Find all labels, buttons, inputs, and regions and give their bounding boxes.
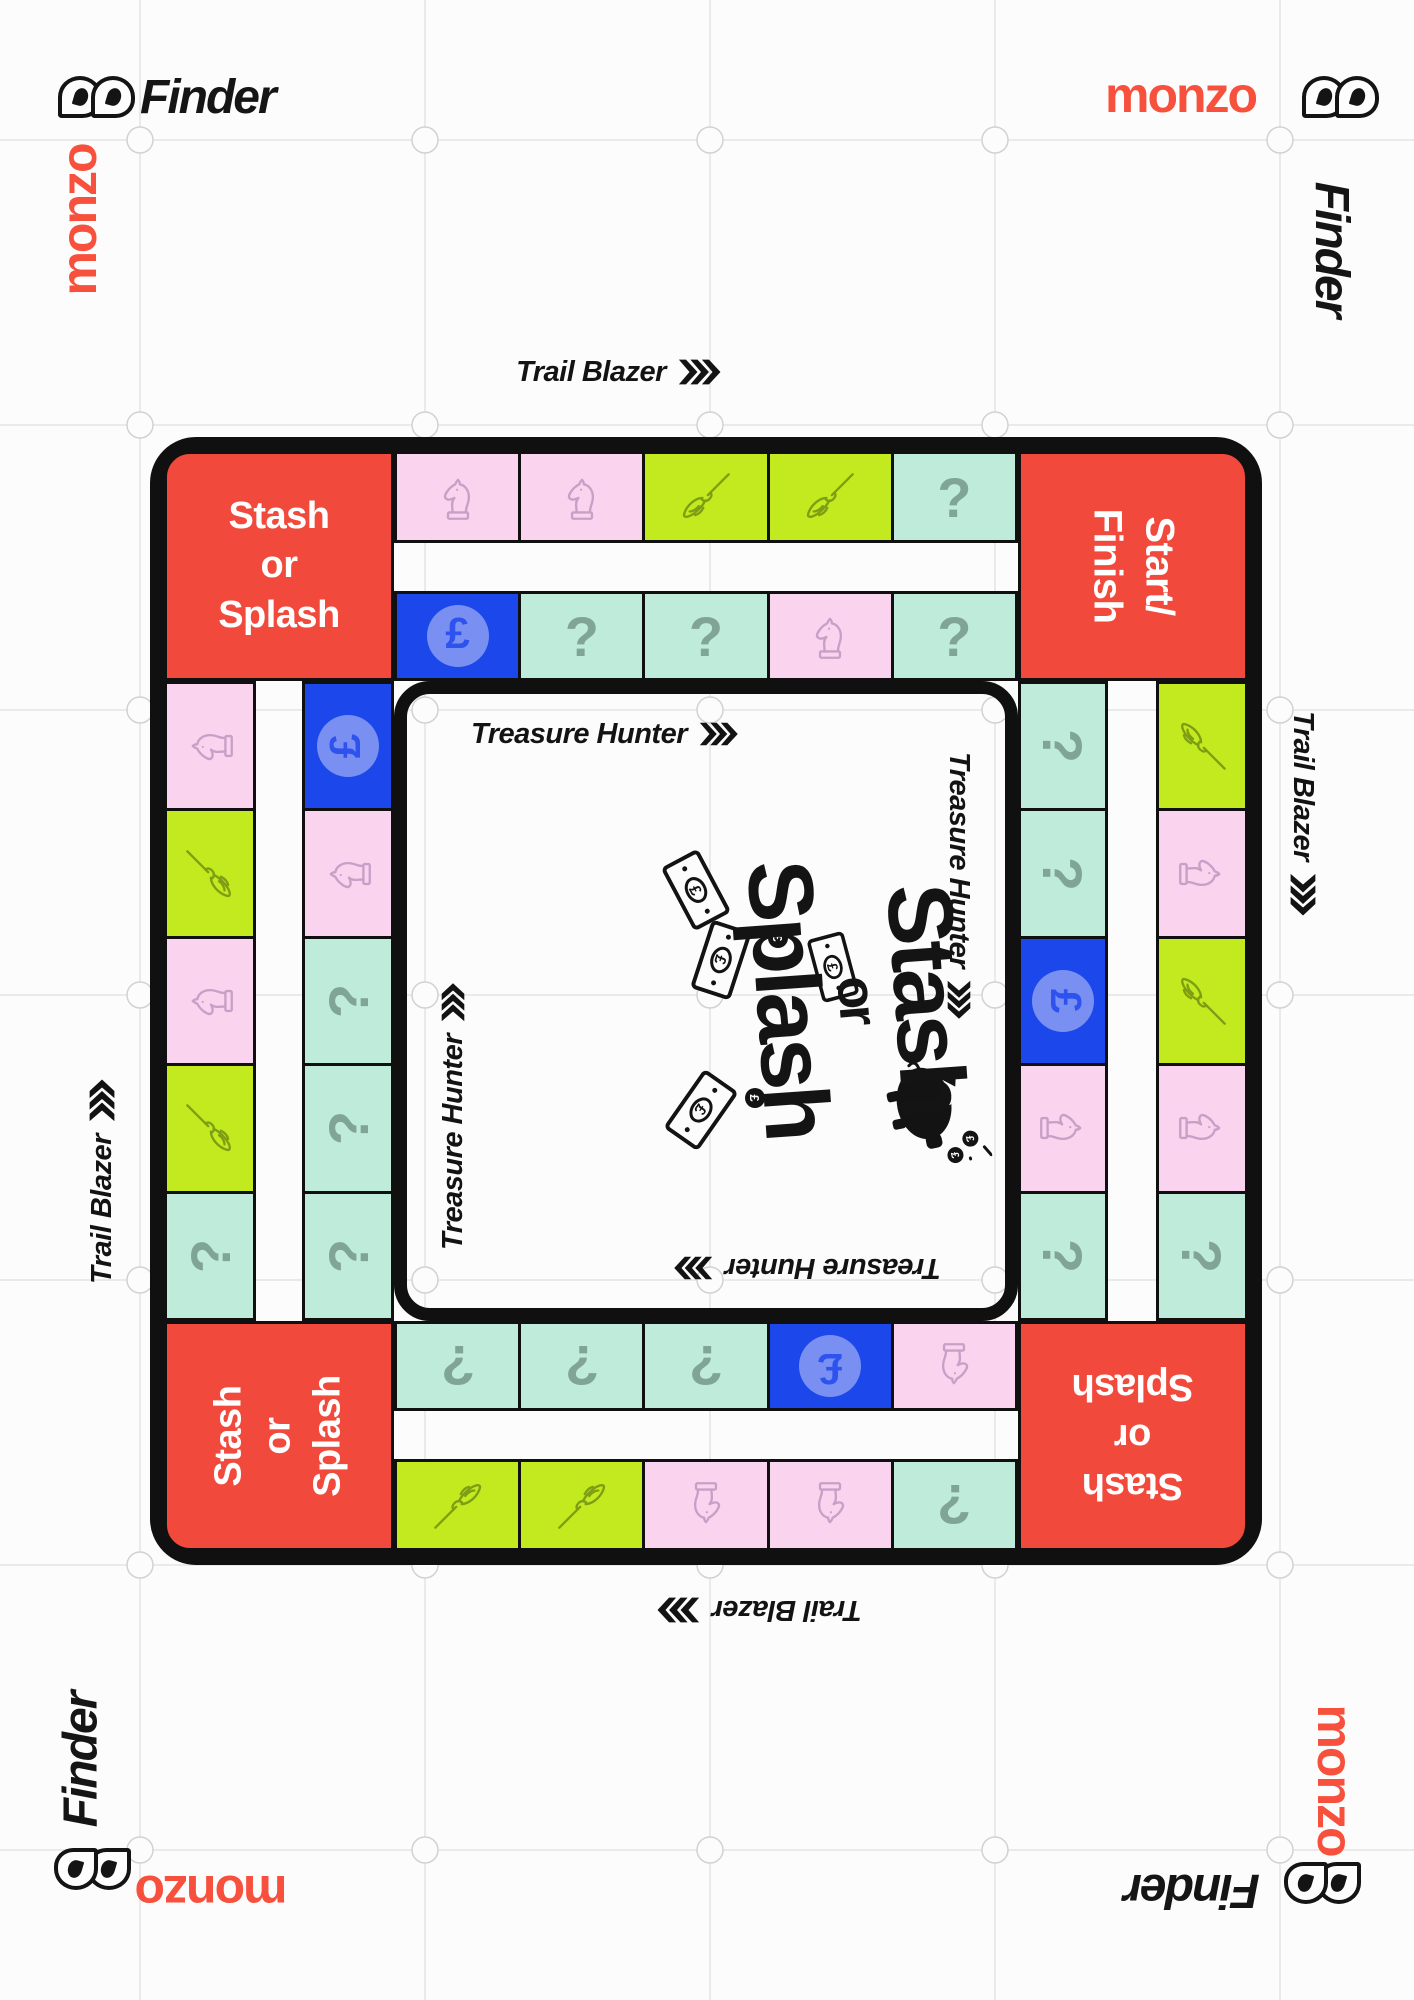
question-mark-icon: ? (937, 604, 971, 669)
question-mark-icon: ? (565, 1334, 599, 1399)
question-mark-icon: ? (1170, 1239, 1235, 1273)
print-sheet: Finder monzo monzo Finder Finder monzo F… (0, 0, 1414, 2000)
question-mark-icon: ? (565, 604, 599, 669)
center-logo-line: Splash (731, 831, 846, 1167)
finder-eyes-icon (58, 76, 135, 118)
banknote-icon: £ (663, 1068, 739, 1151)
track-left-inner: £ ??? (302, 681, 394, 1321)
board-cell-broom (645, 454, 769, 540)
corner-line: or (1072, 1411, 1194, 1460)
question-mark-icon: ? (1031, 729, 1096, 763)
board-cell-knight (645, 1462, 769, 1548)
pound-coin-icon: £ (799, 1335, 861, 1397)
question-mark-icon: ? (178, 1239, 243, 1273)
triple-chevron-icon (946, 980, 972, 1022)
monzo-logo: monzo (56, 130, 102, 310)
knight-icon (801, 607, 859, 665)
finder-eyes-icon (54, 1848, 131, 1890)
pound-coin-icon: £ (1032, 970, 1094, 1032)
board-cell-knight (167, 939, 253, 1066)
knight-icon (801, 1476, 859, 1534)
board-cell-broom (1159, 684, 1245, 811)
corner-stash-or-splash-bottom-right: Stash or Splash (1018, 1321, 1248, 1551)
treasure-hunter-text: Treasure Hunter (437, 1034, 470, 1250)
board-cell-question: ? (1021, 811, 1105, 938)
treasure-hunter-text: Treasure Hunter (725, 1252, 941, 1285)
board-cell-knight (894, 1324, 1015, 1408)
track-top-outer: ? (394, 451, 1018, 543)
corner-line: Finish (1081, 509, 1133, 624)
board-cell-question: ? (521, 594, 645, 678)
broom-icon (553, 1476, 611, 1534)
board-cell-knight (770, 1462, 894, 1548)
board-cell-question: ? (521, 1324, 645, 1408)
board-cell-question: ? (645, 1324, 769, 1408)
trail-blazer-text: Trail Blazer (712, 1594, 862, 1627)
corner-line: Splash (218, 591, 340, 640)
finder-logo: Finder (140, 70, 275, 125)
finder-eye-icon (91, 76, 135, 118)
trail-blazer-text: Trail Blazer (1287, 711, 1320, 861)
board-cell-knight (770, 594, 894, 678)
treasure-hunter-label-left: Treasure Hunter (433, 950, 473, 1280)
question-mark-icon: ? (316, 1111, 381, 1145)
trail-blazer-label-top: Trail Blazer (450, 352, 790, 392)
board-cell-question: ? (894, 1462, 1015, 1548)
triple-chevron-icon (671, 1255, 713, 1281)
question-mark-icon: ? (316, 1239, 381, 1273)
board-cell-knight (521, 454, 645, 540)
question-mark-icon: ? (937, 465, 971, 530)
broom-icon (801, 468, 859, 526)
question-mark-icon: ? (440, 1334, 474, 1399)
board-cell-broom (521, 1462, 645, 1548)
broom-icon (677, 468, 735, 526)
corner-line: Stash (1072, 1461, 1194, 1510)
knight-icon (925, 1337, 983, 1395)
triple-chevron-icon (654, 1596, 700, 1624)
board-cell-pound: £ (397, 594, 521, 678)
corner-line: Stash (218, 492, 340, 541)
track-left-outer: ? (164, 681, 256, 1321)
board-cell-question: ? (1021, 1194, 1105, 1318)
board-cell-pound: £ (1021, 939, 1105, 1066)
corner-start-finish: Start/ Finish (1018, 451, 1248, 681)
board-cell-question: ? (305, 1066, 391, 1193)
corner-stash-or-splash-bottom-left: Stash or Splash (164, 1321, 394, 1551)
treasure-hunter-text: Treasure Hunter (943, 752, 976, 968)
knight-icon (677, 1476, 735, 1534)
finder-eye-icon (54, 1848, 98, 1890)
broom-icon (181, 1099, 239, 1157)
center-square: Treasure Hunter Treasure Hunter Treasure… (394, 681, 1018, 1321)
broom-icon (1173, 717, 1231, 775)
monzo-logo: monzo (1105, 66, 1256, 124)
track-top-inner: £?? ? (394, 591, 1018, 681)
treasure-hunter-label-top: Treasure Hunter (441, 714, 771, 754)
board-cell-knight (1159, 811, 1245, 938)
trail-blazer-label-bottom: Trail Blazer (588, 1590, 928, 1630)
board-cell-question: ? (305, 939, 391, 1066)
corner-line: Start/ (1133, 509, 1185, 624)
board-cell-question: ? (1159, 1194, 1245, 1318)
corner-line: Stash (205, 1375, 254, 1497)
finder-logo: Finder (1100, 1866, 1285, 1916)
board-cell-knight (305, 811, 391, 938)
knight-icon (319, 845, 377, 903)
question-mark-icon: ? (689, 604, 723, 669)
triple-chevron-icon (440, 980, 466, 1022)
track-bottom-inner: ???£ (394, 1321, 1018, 1411)
knight-icon (1173, 1099, 1231, 1157)
knight-icon (1173, 845, 1231, 903)
triple-chevron-icon (1289, 873, 1317, 919)
track-bottom-outer: ? (394, 1459, 1018, 1551)
board-cell-broom (167, 811, 253, 938)
board-cell-question: ? (1021, 684, 1105, 811)
monzo-logo: monzo (1312, 1690, 1358, 1870)
banknote-icon: £ (661, 848, 732, 931)
triple-chevron-icon (699, 721, 741, 747)
finder-logo: Finder (57, 1668, 105, 1853)
board-cell-question: ? (894, 454, 1015, 540)
knight-icon (429, 468, 487, 526)
pound-coin-icon: £ (427, 605, 489, 667)
board-cell-question: ? (894, 594, 1015, 678)
finder-eye-icon (1335, 76, 1379, 118)
corner-line: or (218, 541, 340, 590)
finder-eyes-icon (1284, 1862, 1361, 1904)
question-mark-icon: ? (316, 984, 381, 1018)
corner-stash-or-splash-top-left: Stash or Splash (164, 451, 394, 681)
treasure-hunter-text: Treasure Hunter (471, 718, 687, 751)
finder-logo: Finder (1308, 159, 1356, 339)
knight-icon (1034, 1099, 1092, 1157)
question-mark-icon: ? (1031, 857, 1096, 891)
board-cell-broom (770, 454, 894, 540)
question-mark-icon: ? (689, 1334, 723, 1399)
center-logo: £ £ £ (572, 834, 972, 1164)
board-cell-knight (1021, 1066, 1105, 1193)
trail-blazer-label-right: Trail Blazer (1283, 645, 1323, 985)
corner-line: or (254, 1375, 303, 1497)
board-cell-broom (397, 1462, 521, 1548)
board-cell-broom (167, 1066, 253, 1193)
treasure-hunter-label-right: Treasure Hunter (939, 722, 979, 1052)
game-board: Stash or Splash Start/ Finish Stash or S… (150, 437, 1262, 1565)
monzo-logo: monzo (112, 1868, 312, 1918)
treasure-hunter-label-bottom: Treasure Hunter (641, 1248, 971, 1288)
knight-icon (181, 717, 239, 775)
finder-eyes-icon (1302, 76, 1379, 118)
question-mark-icon: ? (1031, 1239, 1096, 1273)
board-cell-knight (167, 684, 253, 811)
trail-blazer-text: Trail Blazer (516, 356, 666, 389)
board-cell-question: ? (645, 594, 769, 678)
corner-line: Splash (1072, 1362, 1194, 1411)
broom-icon (181, 845, 239, 903)
board-cell-question: ? (167, 1194, 253, 1318)
board-cell-question: ? (397, 1324, 521, 1408)
pound-coin-icon: £ (317, 715, 379, 777)
finder-eye-icon (1284, 1862, 1328, 1904)
broom-icon (1173, 972, 1231, 1030)
corner-line: Splash (304, 1375, 353, 1497)
question-mark-icon: ? (937, 1473, 971, 1538)
trail-blazer-text: Trail Blazer (86, 1134, 119, 1284)
board-cell-broom (1159, 939, 1245, 1066)
trail-blazer-label-left: Trail Blazer (82, 1010, 122, 1350)
knight-icon (181, 972, 239, 1030)
track-right-outer: ? (1156, 681, 1248, 1321)
track-right-inner: ??£ ? (1018, 681, 1108, 1321)
board-cell-pound: £ (305, 684, 391, 811)
triple-chevron-icon (678, 358, 724, 386)
broom-icon (429, 1476, 487, 1534)
knight-icon (553, 468, 611, 526)
board-cell-knight (397, 454, 521, 540)
board-cell-question: ? (305, 1194, 391, 1318)
triple-chevron-icon (88, 1076, 116, 1122)
board-cell-pound: £ (770, 1324, 894, 1408)
board-cell-knight (1159, 1066, 1245, 1193)
